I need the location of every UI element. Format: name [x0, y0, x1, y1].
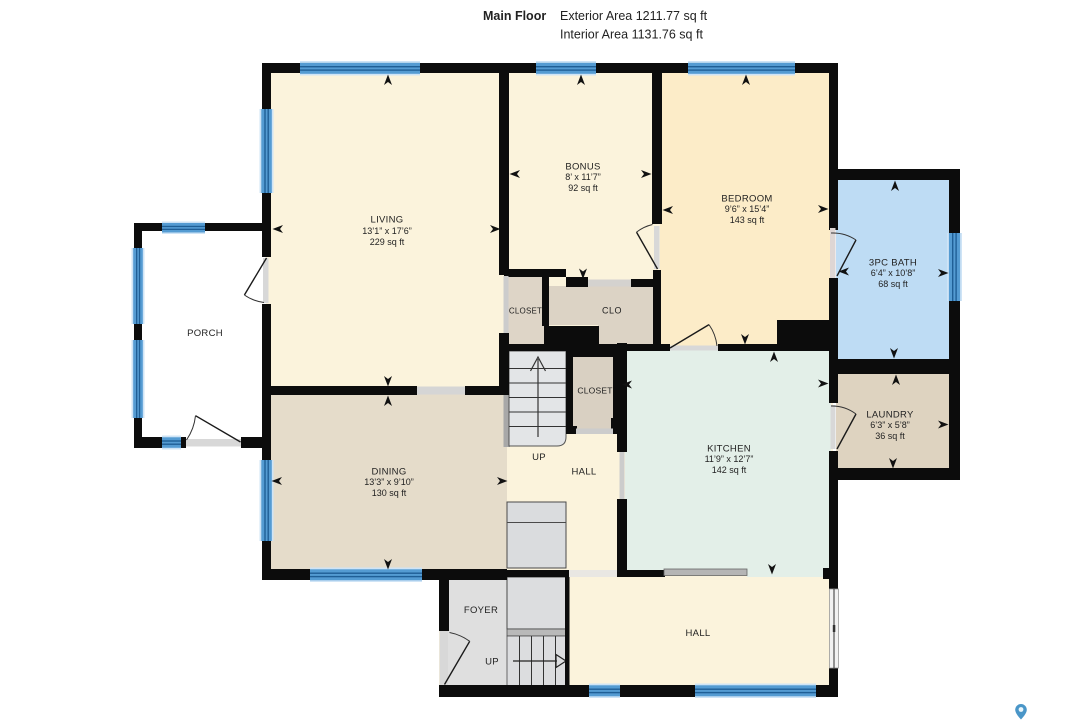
- svg-text:HALL: HALL: [572, 467, 597, 478]
- svg-text:CLO: CLO: [602, 306, 622, 316]
- svg-text:229 sq ft: 229 sq ft: [370, 237, 405, 247]
- svg-text:8’ x 11’7”: 8’ x 11’7”: [565, 172, 601, 182]
- svg-text:36 sq ft: 36 sq ft: [875, 431, 905, 441]
- svg-text:UP: UP: [485, 657, 499, 668]
- svg-text:142 sq ft: 142 sq ft: [712, 465, 747, 475]
- svg-text:13’3” x 9’10”: 13’3” x 9’10”: [364, 477, 414, 487]
- svg-text:130 sq ft: 130 sq ft: [372, 488, 407, 498]
- svg-text:KITCHEN: KITCHEN: [707, 444, 751, 455]
- svg-text:UP: UP: [532, 452, 546, 463]
- svg-text:6’4” x 10’8”: 6’4” x 10’8”: [871, 268, 916, 278]
- svg-text:Exterior Area 1211.77 sq ft: Exterior Area 1211.77 sq ft: [560, 9, 708, 23]
- svg-text:BONUS: BONUS: [565, 162, 600, 173]
- svg-text:LIVING: LIVING: [371, 215, 404, 226]
- svg-text:FOYER: FOYER: [464, 605, 498, 616]
- svg-text:PORCH: PORCH: [187, 328, 223, 339]
- svg-text:3PC BATH: 3PC BATH: [869, 258, 917, 269]
- svg-text:HALL: HALL: [686, 628, 711, 639]
- svg-text:143 sq ft: 143 sq ft: [730, 215, 765, 225]
- svg-text:6’3” x 5’8”: 6’3” x 5’8”: [870, 420, 910, 430]
- svg-text:11’9” x 12’7”: 11’9” x 12’7”: [705, 454, 754, 464]
- svg-text:Interior Area 1131.76 sq ft: Interior Area 1131.76 sq ft: [560, 28, 703, 42]
- svg-text:BEDROOM: BEDROOM: [721, 194, 772, 205]
- svg-text:CLOSET: CLOSET: [577, 386, 612, 396]
- svg-text:Main Floor: Main Floor: [483, 9, 546, 23]
- svg-text:LAUNDRY: LAUNDRY: [866, 410, 914, 421]
- svg-text:DINING: DINING: [371, 467, 406, 478]
- svg-text:9’6” x 15’4”: 9’6” x 15’4”: [725, 204, 770, 214]
- svg-text:13’1” x 17’6”: 13’1” x 17’6”: [362, 226, 412, 236]
- svg-text:68 sq ft: 68 sq ft: [878, 279, 908, 289]
- svg-text:92 sq ft: 92 sq ft: [568, 183, 598, 193]
- svg-text:CLOSET: CLOSET: [509, 307, 542, 316]
